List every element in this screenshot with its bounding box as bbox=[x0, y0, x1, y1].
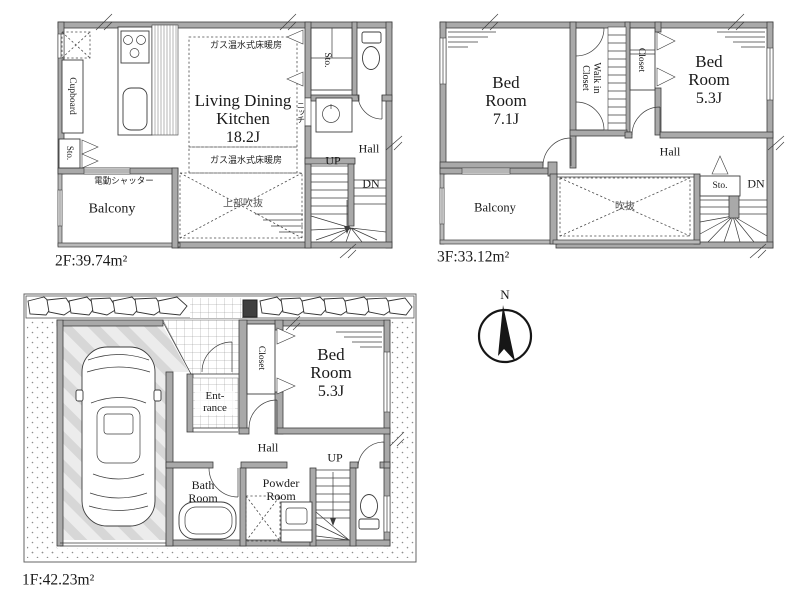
label-up-2f: UP bbox=[325, 155, 340, 168]
label-cupboard: Cupboard bbox=[67, 77, 77, 114]
vanity-icon bbox=[281, 502, 312, 542]
label-floor-heating-top: ガス温水式床暖房 bbox=[210, 41, 282, 51]
label-bedroom-a: Bed Room 7.1J bbox=[474, 74, 538, 128]
label-closet-3f: Closet bbox=[636, 48, 646, 72]
label-balcony-2f: Balcony bbox=[89, 201, 136, 216]
sink-icon bbox=[123, 88, 147, 130]
gate-post bbox=[243, 300, 257, 317]
label-void-2f: 上部吹抜 bbox=[223, 200, 263, 211]
label-bath-room: Bath Room bbox=[179, 479, 227, 505]
label-walk-in-closet: Walk in Closet bbox=[579, 51, 601, 105]
label-hall-1f: Hall bbox=[258, 442, 279, 455]
label-ldk-size: 18.2J bbox=[184, 129, 302, 146]
floor-plan-page: ガス温水式床暖房 Living Dining Kitchen 18.2J ガス温… bbox=[0, 0, 800, 600]
kitchen-counter bbox=[118, 25, 178, 135]
label-area-2f: 2F:39.74m² bbox=[55, 254, 127, 271]
label-closet-1f: Closet bbox=[256, 346, 266, 370]
bathtub-icon bbox=[179, 502, 236, 539]
toilet-2f-icon bbox=[358, 32, 382, 119]
car-icon bbox=[76, 347, 161, 526]
stove-icon bbox=[121, 31, 149, 63]
label-bedroom-b-name: Bed Room bbox=[677, 53, 741, 90]
label-electric-shutter: 電動シャッター bbox=[94, 176, 154, 185]
label-ldk: Living Dining Kitchen 18.2J bbox=[184, 92, 302, 146]
label-ldk-name: Living Dining Kitchen bbox=[184, 92, 302, 129]
label-bedroom-a-size: 7.1J bbox=[474, 111, 538, 128]
label-hall-3f: Hall bbox=[660, 146, 681, 159]
label-bedroom-b-size: 5.3J bbox=[677, 90, 741, 107]
label-up-1f: UP bbox=[327, 452, 342, 465]
washbasin-icon bbox=[316, 98, 352, 132]
label-bedroom-1f-size: 5.3J bbox=[299, 383, 363, 400]
label-void-3f: 吹抜 bbox=[615, 203, 635, 214]
label-dn-2f: DN bbox=[362, 178, 379, 191]
label-entrance: Ent-rance bbox=[195, 391, 235, 415]
label-bedroom-a-name: Bed Room bbox=[474, 74, 538, 111]
label-dn-3f: DN bbox=[747, 178, 764, 191]
label-bedroom-1f: Bed Room 5.3J bbox=[299, 346, 363, 400]
floor3-plan bbox=[440, 14, 784, 258]
compass-icon bbox=[479, 305, 531, 362]
label-balcony-3f: Balcony bbox=[474, 201, 516, 215]
label-compass-north: N bbox=[500, 288, 509, 302]
label-area-3f: 3F:33.12m² bbox=[437, 250, 509, 267]
label-powder-room: Powder Room bbox=[250, 477, 312, 503]
label-floor-heating-bottom: ガス温水式床暖房 bbox=[210, 156, 282, 166]
label-hall-2f: Hall bbox=[359, 143, 380, 156]
niche-box bbox=[305, 98, 311, 126]
stone-fence bbox=[26, 296, 414, 318]
label-bedroom-1f-name: Bed Room bbox=[299, 346, 363, 383]
stairs-3f bbox=[700, 196, 767, 242]
label-storage-3f: Sto. bbox=[712, 181, 727, 191]
floor1-plan bbox=[24, 294, 416, 562]
label-area-1f: 1F:42.23m² bbox=[22, 573, 94, 590]
label-storage-left-2f: Sto. bbox=[64, 146, 74, 160]
label-niche: ニッチ bbox=[296, 102, 305, 123]
label-storage-right-2f: Sto. bbox=[322, 52, 332, 67]
label-bedroom-b: Bed Room 5.3J bbox=[677, 53, 741, 107]
